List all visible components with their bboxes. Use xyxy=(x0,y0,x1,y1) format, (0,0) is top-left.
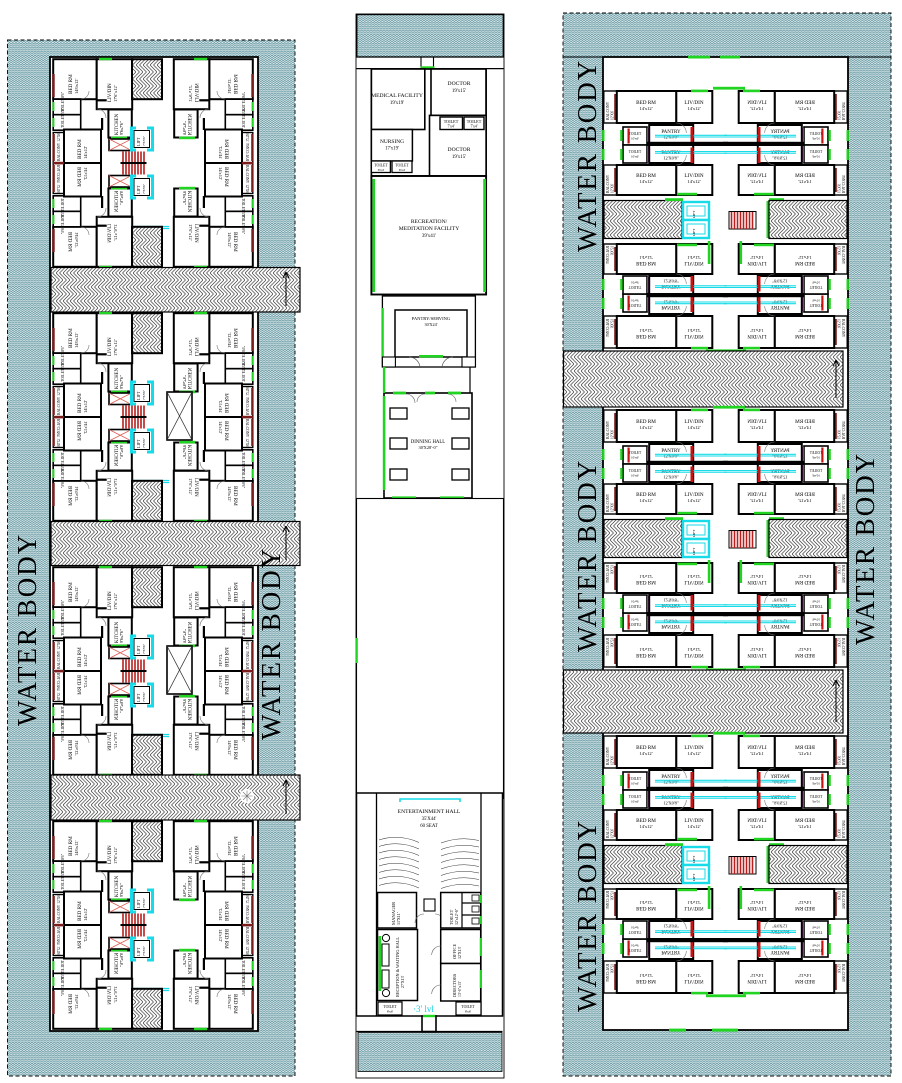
svg-text:ENTERTAINMENT HALL: ENTERTAINMENT HALL xyxy=(398,809,461,815)
svg-text:TOILET: TOILET xyxy=(383,1005,397,1009)
svg-text:·3' lvl: ·3' lvl xyxy=(413,1004,434,1014)
svg-text:12'x12'-6": 12'x12'-6" xyxy=(454,908,459,925)
svg-text:PANTRY/SERVING: PANTRY/SERVING xyxy=(412,316,451,321)
svg-text:30'X24': 30'X24' xyxy=(425,322,438,327)
svg-text:WATER BODY: WATER BODY xyxy=(572,819,602,1012)
svg-text:WATER BODY: WATER BODY xyxy=(12,533,42,726)
svg-text:13'-6"x13': 13'-6"x13' xyxy=(458,981,462,997)
svg-text:DOCTOR: DOCTOR xyxy=(448,81,471,87)
svg-text:TOILET: TOILET xyxy=(461,1005,475,1009)
svg-text:19'x15': 19'x15' xyxy=(452,155,466,160)
svg-text:DOCTOR: DOCTOR xyxy=(448,147,471,153)
svg-text:19'x19': 19'x19' xyxy=(390,101,404,106)
svg-text:6'x4': 6'x4' xyxy=(378,168,385,172)
svg-text:WATER BODY: WATER BODY xyxy=(256,547,286,740)
svg-text:WATER BODY: WATER BODY xyxy=(572,59,602,252)
svg-text:30'X28'-0": 30'X28'-0" xyxy=(419,445,438,450)
svg-text:60 SEAT: 60 SEAT xyxy=(420,824,438,829)
svg-text:19'x15': 19'x15' xyxy=(452,89,466,94)
svg-text:DIRECTORS: DIRECTORS xyxy=(452,973,457,997)
svg-text:6'x4': 6'x4' xyxy=(399,168,406,172)
svg-text:7'x4': 7'x4' xyxy=(447,125,454,129)
svg-text:TOILET: TOILET xyxy=(467,119,482,124)
svg-text:RECREATION/: RECREATION/ xyxy=(411,219,448,225)
svg-text:39'x41': 39'x41' xyxy=(422,234,436,239)
svg-text:WATER BODY: WATER BODY xyxy=(850,452,880,645)
svg-text:27'X13': 27'X13' xyxy=(400,975,405,988)
svg-text:WATER BODY: WATER BODY xyxy=(572,459,602,652)
svg-text:NURSING: NURSING xyxy=(380,139,404,145)
svg-text:17'x19': 17'x19' xyxy=(385,147,399,152)
svg-text:7'x4': 7'x4' xyxy=(470,125,477,129)
svg-text:MEDICAL FACILITY: MEDICAL FACILITY xyxy=(371,93,423,99)
svg-text:11'X11': 11'X11' xyxy=(396,912,401,925)
svg-text:35'X44': 35'X44' xyxy=(422,817,437,822)
svg-text:8'x6': 8'x6' xyxy=(387,1010,394,1014)
svg-text:TOILET: TOILET xyxy=(444,119,459,124)
svg-text:8'x6': 8'x6' xyxy=(465,1010,472,1014)
svg-text:MEDITATION FACILITY: MEDITATION FACILITY xyxy=(399,226,460,232)
svg-text:12'X13': 12'X13' xyxy=(457,946,462,959)
